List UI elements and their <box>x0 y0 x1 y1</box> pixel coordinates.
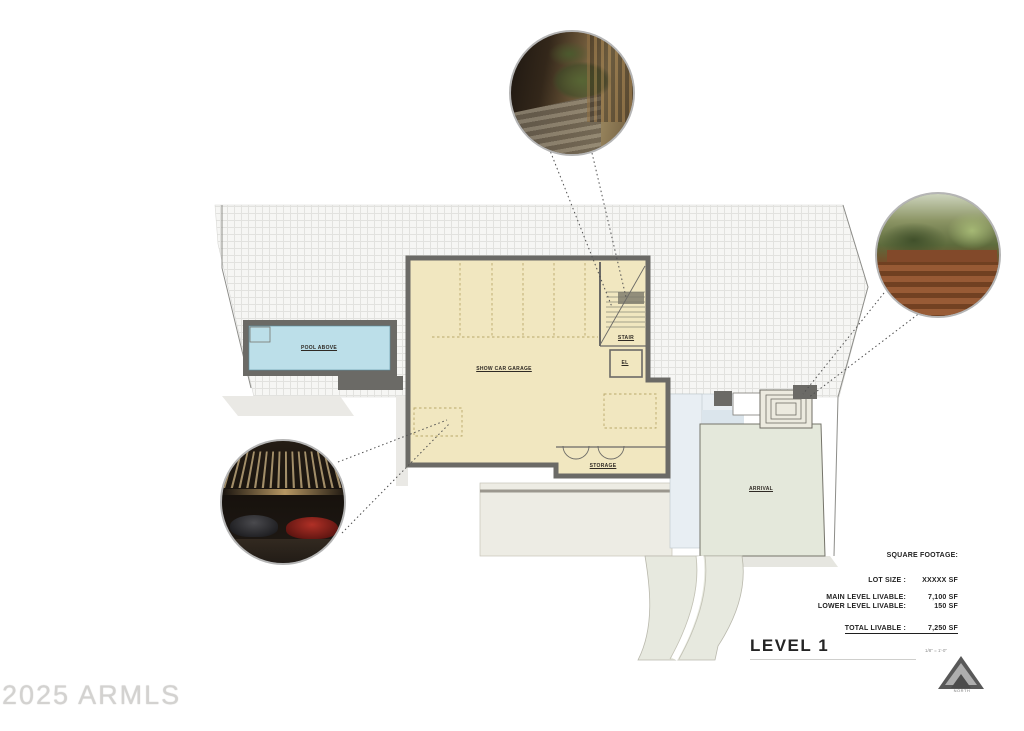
north-arrow-label: NORTH <box>940 688 984 693</box>
stair-photo-wood-slats <box>587 32 633 122</box>
landscape-photo-inset <box>875 192 1001 318</box>
arrival-label: ARRIVAL <box>749 486 773 492</box>
square-footage-block: SQUARE FOOTAGE: LOT SIZE : XXXXX SF MAIN… <box>700 552 958 634</box>
lot-size-row: LOT SIZE : XXXXX SF <box>700 576 958 586</box>
armls-watermark: 2025 ARMLS <box>2 680 181 711</box>
elevator-label: EL <box>622 360 629 366</box>
lot-size-value: XXXXX SF <box>906 576 958 586</box>
lower-terrace <box>480 483 700 556</box>
lower-level-label: LOWER LEVEL LIVABLE: <box>818 602 906 612</box>
stair-label: STAIR <box>618 335 634 341</box>
total-livable-value: 7,250 SF <box>906 625 958 632</box>
garage-photo-glow <box>222 489 346 495</box>
garage-photo-inset <box>220 439 346 565</box>
level-title: LEVEL 1 <box>750 636 829 656</box>
floor-plan-sheet: POOL ABOVE SHOW CAR GARAGE STAIR EL STOR… <box>0 0 1024 731</box>
level-title-rule <box>750 659 916 660</box>
landscape-photo-corten-steps <box>877 262 1001 318</box>
garage-photo-dark-car <box>230 515 278 537</box>
lower-level-row: LOWER LEVEL LIVABLE: 150 SF <box>700 602 958 612</box>
garage-photo-floor <box>222 539 346 565</box>
pool-label: POOL ABOVE <box>301 345 337 351</box>
garage-photo-ceiling-slats <box>220 452 346 488</box>
lower-level-value: 150 SF <box>906 602 958 612</box>
total-livable-row: TOTAL LIVABLE : 7,250 SF <box>845 625 958 634</box>
garage-photo-red-car <box>286 517 338 539</box>
storage-label: STORAGE <box>590 463 617 469</box>
main-level-row: MAIN LEVEL LIVABLE: 7,100 SF <box>700 593 958 603</box>
lot-size-label: LOT SIZE : <box>868 576 906 586</box>
total-livable-label: TOTAL LIVABLE : <box>845 625 906 632</box>
garage-label: SHOW CAR GARAGE <box>476 366 532 372</box>
main-level-label: MAIN LEVEL LIVABLE: <box>826 593 906 603</box>
main-level-value: 7,100 SF <box>906 593 958 603</box>
landscape-photo-planter <box>887 250 997 262</box>
stair-photo-inset <box>509 30 635 156</box>
north-arrow-icon <box>938 656 984 689</box>
scale-note: 1/8" = 1'-0" <box>925 648 985 653</box>
square-footage-heading: SQUARE FOOTAGE: <box>700 552 958 559</box>
